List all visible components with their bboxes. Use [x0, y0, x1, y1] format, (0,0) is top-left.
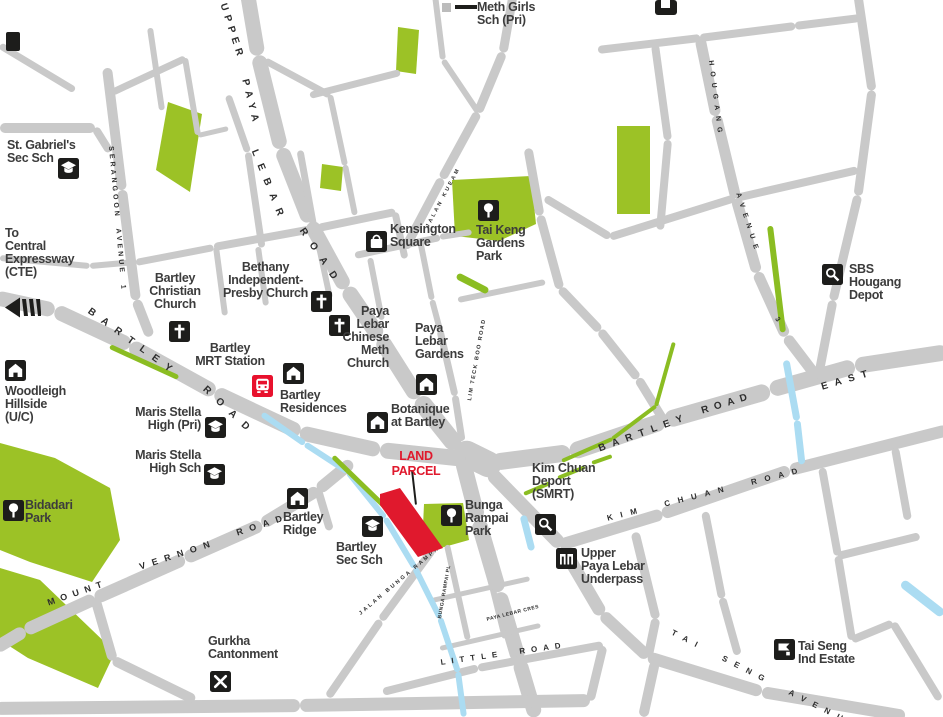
poi-label-kim-chuan-deport-smrt: Kim ChuanDeport(SMRT) [532, 462, 602, 501]
poi-label-maris-stella-high-sch: Maris StellaHigh Sch [125, 449, 201, 475]
poi-label-line: Sch (Pri) [477, 14, 547, 27]
poi-label-kensington-square: KensingtonSquare [390, 223, 470, 249]
poi-label-tai-keng-gardens-park: Tai KengGardensPark [476, 224, 536, 263]
poi-label-meth-girls-sch: Meth GirlsSch (Pri) [477, 1, 547, 27]
poi-label-botanique-at-bartley: Botaniqueat Bartley [391, 403, 461, 429]
poi-label-st-gabriels-sec-sch: St. Gabriel'sSec Sch [7, 139, 77, 165]
poi-label-line: Sec Sch [7, 152, 77, 165]
poi-label-line: (SMRT) [532, 488, 602, 501]
poi-label-gurkha-cantonment: GurkhaCantonment [208, 635, 293, 661]
poi-label-line: Park [25, 512, 85, 525]
poi-label-line: at Bartley [391, 416, 461, 429]
poi-label-line: Park [476, 250, 536, 263]
mrt-icon [252, 375, 273, 397]
poi-label-line: Underpass [581, 573, 656, 586]
poi-label-line: (U/C) [5, 411, 75, 424]
school-icon [362, 516, 383, 537]
poi-label-upper-paya-lebar-underpass: UpperPaya LebarUnderpass [581, 547, 656, 586]
poi-label-line: Park [465, 525, 520, 538]
tree-icon [478, 200, 499, 221]
poi-label-bidadari-park: BidadariPark [25, 499, 85, 525]
poi-label-bethany-presby-church: BethanyIndependent-Presby Church [218, 261, 313, 300]
poi-label-line: MRT Station [190, 355, 270, 368]
poi-label-woodleigh-hillside: WoodleighHillside(U/C) [5, 385, 75, 424]
poi-label-line: Church [140, 298, 210, 311]
house-icon [283, 363, 304, 384]
poi-label-line: Sec Sch [336, 554, 391, 567]
poi-label-line: Depot [849, 289, 909, 302]
poi-layer: St. Gabriel'sSec SchMeth GirlsSch (Pri)K… [0, 0, 943, 717]
tree-icon [3, 500, 24, 521]
poi-label-line: High Sch [125, 462, 201, 475]
map-canvas: UPPERPAYALEBARROADBARTLEYROADBARTLEYROAD… [0, 0, 943, 717]
poi-label-bartley-residences: BartleyResidences [280, 389, 350, 415]
poi-label-line: Church [336, 357, 389, 370]
poi-label-paya-lebar-gardens: PayaLebarGardens [415, 322, 470, 361]
school-icon [205, 417, 226, 438]
magnifier-icon [822, 264, 843, 285]
school-icon [204, 464, 225, 485]
poi-label-bartley-ridge: BartleyRidge [283, 511, 338, 537]
house-icon [5, 360, 26, 381]
poi-label-bartley-christian-church: BartleyChristianChurch [140, 272, 210, 311]
poi-label-line: Residences [280, 402, 350, 415]
cross-icon [311, 291, 332, 312]
cross-icon [169, 321, 190, 342]
poi-label-bartley-mrt-station: BartleyMRT Station [190, 342, 270, 368]
poi-label-line: Ind Estate [798, 653, 868, 666]
bag-icon [366, 231, 387, 252]
magnifier-icon [535, 514, 556, 535]
poi-label-paya-lebar-chinese-meth-church: PayaLebarChineseMethChurch [336, 305, 389, 370]
poi-label-line: High (Pri) [125, 419, 201, 432]
poi-label-bunga-rampai-park: BungaRampaiPark [465, 499, 520, 538]
poi-label-to-central-expressway: ToCentralExpressway(CTE) [5, 227, 85, 279]
factory-icon [774, 639, 795, 660]
poi-label-tai-seng-ind-estate: Tai SengInd Estate [798, 640, 868, 666]
poi-label-maris-stella-high-pri: Maris StellaHigh (Pri) [125, 406, 201, 432]
house-icon [416, 374, 437, 395]
poi-label-line: (CTE) [5, 266, 85, 279]
underpass-icon [556, 548, 577, 569]
arrow-left-icon [5, 296, 41, 319]
xcross-icon [210, 671, 231, 692]
poi-label-line: Gardens [415, 348, 470, 361]
poi-label-sbs-hougang-depot: SBSHougangDepot [849, 263, 909, 302]
house-icon [367, 412, 388, 433]
poi-label-line: Cantonment [208, 648, 293, 661]
poi-label-line: Ridge [283, 524, 338, 537]
poi-label-bartley-sec-sch: BartleySec Sch [336, 541, 391, 567]
tree-icon [441, 505, 462, 526]
house-icon [287, 488, 308, 509]
poi-label-line: Square [390, 236, 470, 249]
poi-label-line: Presby Church [218, 287, 313, 300]
